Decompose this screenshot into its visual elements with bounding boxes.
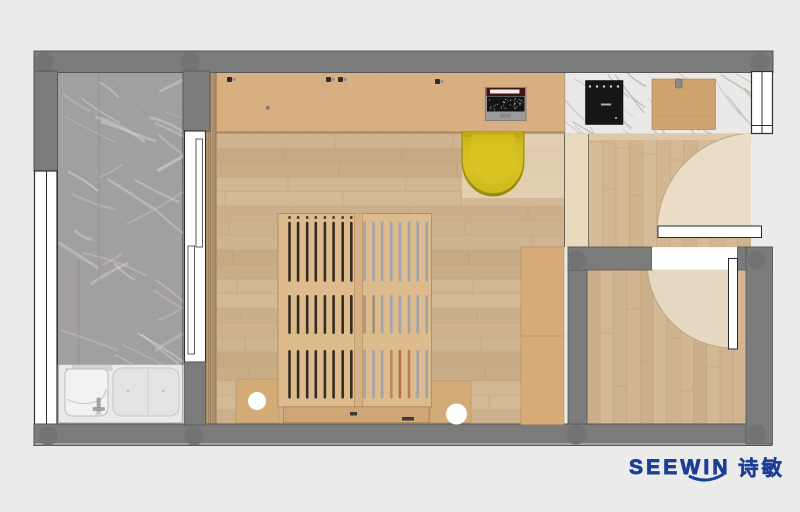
- svg-text:诗敏: 诗敏: [738, 456, 785, 480]
